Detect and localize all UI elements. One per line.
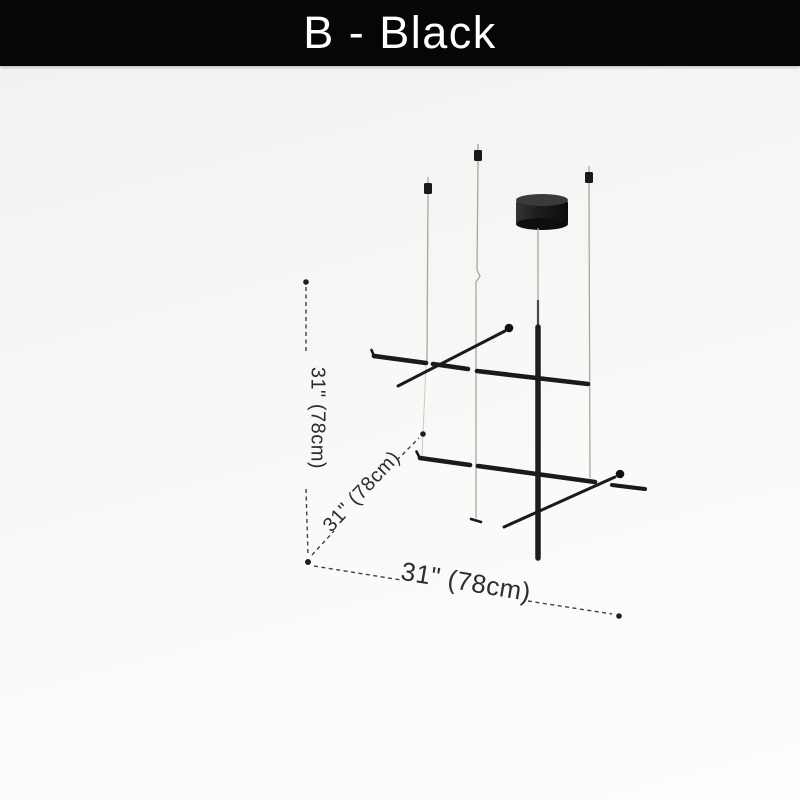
width-dimension-line xyxy=(528,601,612,614)
hanging-wire-right xyxy=(589,183,590,478)
depth-dimension-line xyxy=(397,438,419,460)
ceiling-mount xyxy=(474,150,482,161)
ceiling-mount xyxy=(585,172,593,183)
ceiling-canopy xyxy=(516,194,568,230)
lower-tube-segment xyxy=(612,485,645,489)
upper-tube-segment xyxy=(477,371,588,384)
canopy-bottom xyxy=(516,218,568,230)
horizontal-tubes xyxy=(372,350,646,489)
depth-dimension-line xyxy=(312,531,334,555)
upper-diagonal-rod xyxy=(398,331,505,386)
pendant-lamp-dimension-diagram xyxy=(0,0,800,800)
upper-tube-segment xyxy=(374,356,426,363)
width-dimension-line xyxy=(314,566,401,580)
height-dimension-line xyxy=(306,489,308,554)
dimension-corner-point xyxy=(305,559,311,565)
ceiling-mounts xyxy=(424,144,593,194)
dimension-endpoint xyxy=(420,431,426,437)
hanging-wire-left-lower xyxy=(422,366,426,456)
dimension-endpoint xyxy=(303,279,309,285)
ceiling-mount xyxy=(424,183,432,194)
dimension-endpoint xyxy=(616,613,622,619)
product-image-card: B - Black xyxy=(0,0,800,800)
lower-diagonal-rod xyxy=(504,477,615,527)
lower-tube-segment xyxy=(420,458,470,465)
hanging-wire-left xyxy=(427,194,428,362)
rod-ball-tip xyxy=(505,324,514,333)
wire-end-cap xyxy=(471,519,481,522)
height-dimension-label: 31" (78cm) xyxy=(306,367,329,469)
rod-ball-tip xyxy=(616,470,625,479)
canopy-top xyxy=(516,194,568,206)
